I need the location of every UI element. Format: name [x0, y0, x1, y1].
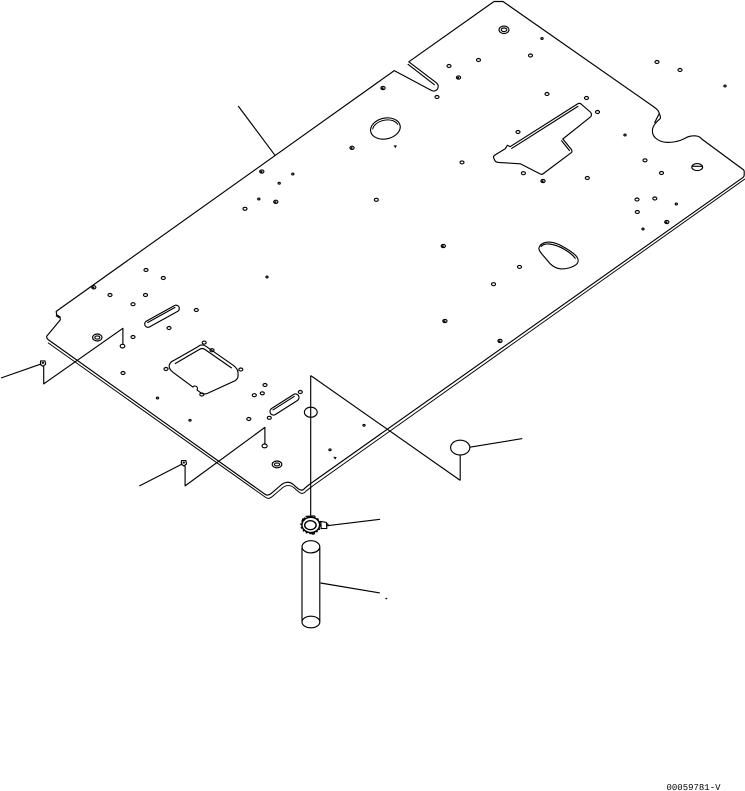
svg-text:00059781-V: 00059781-V [666, 783, 721, 791]
